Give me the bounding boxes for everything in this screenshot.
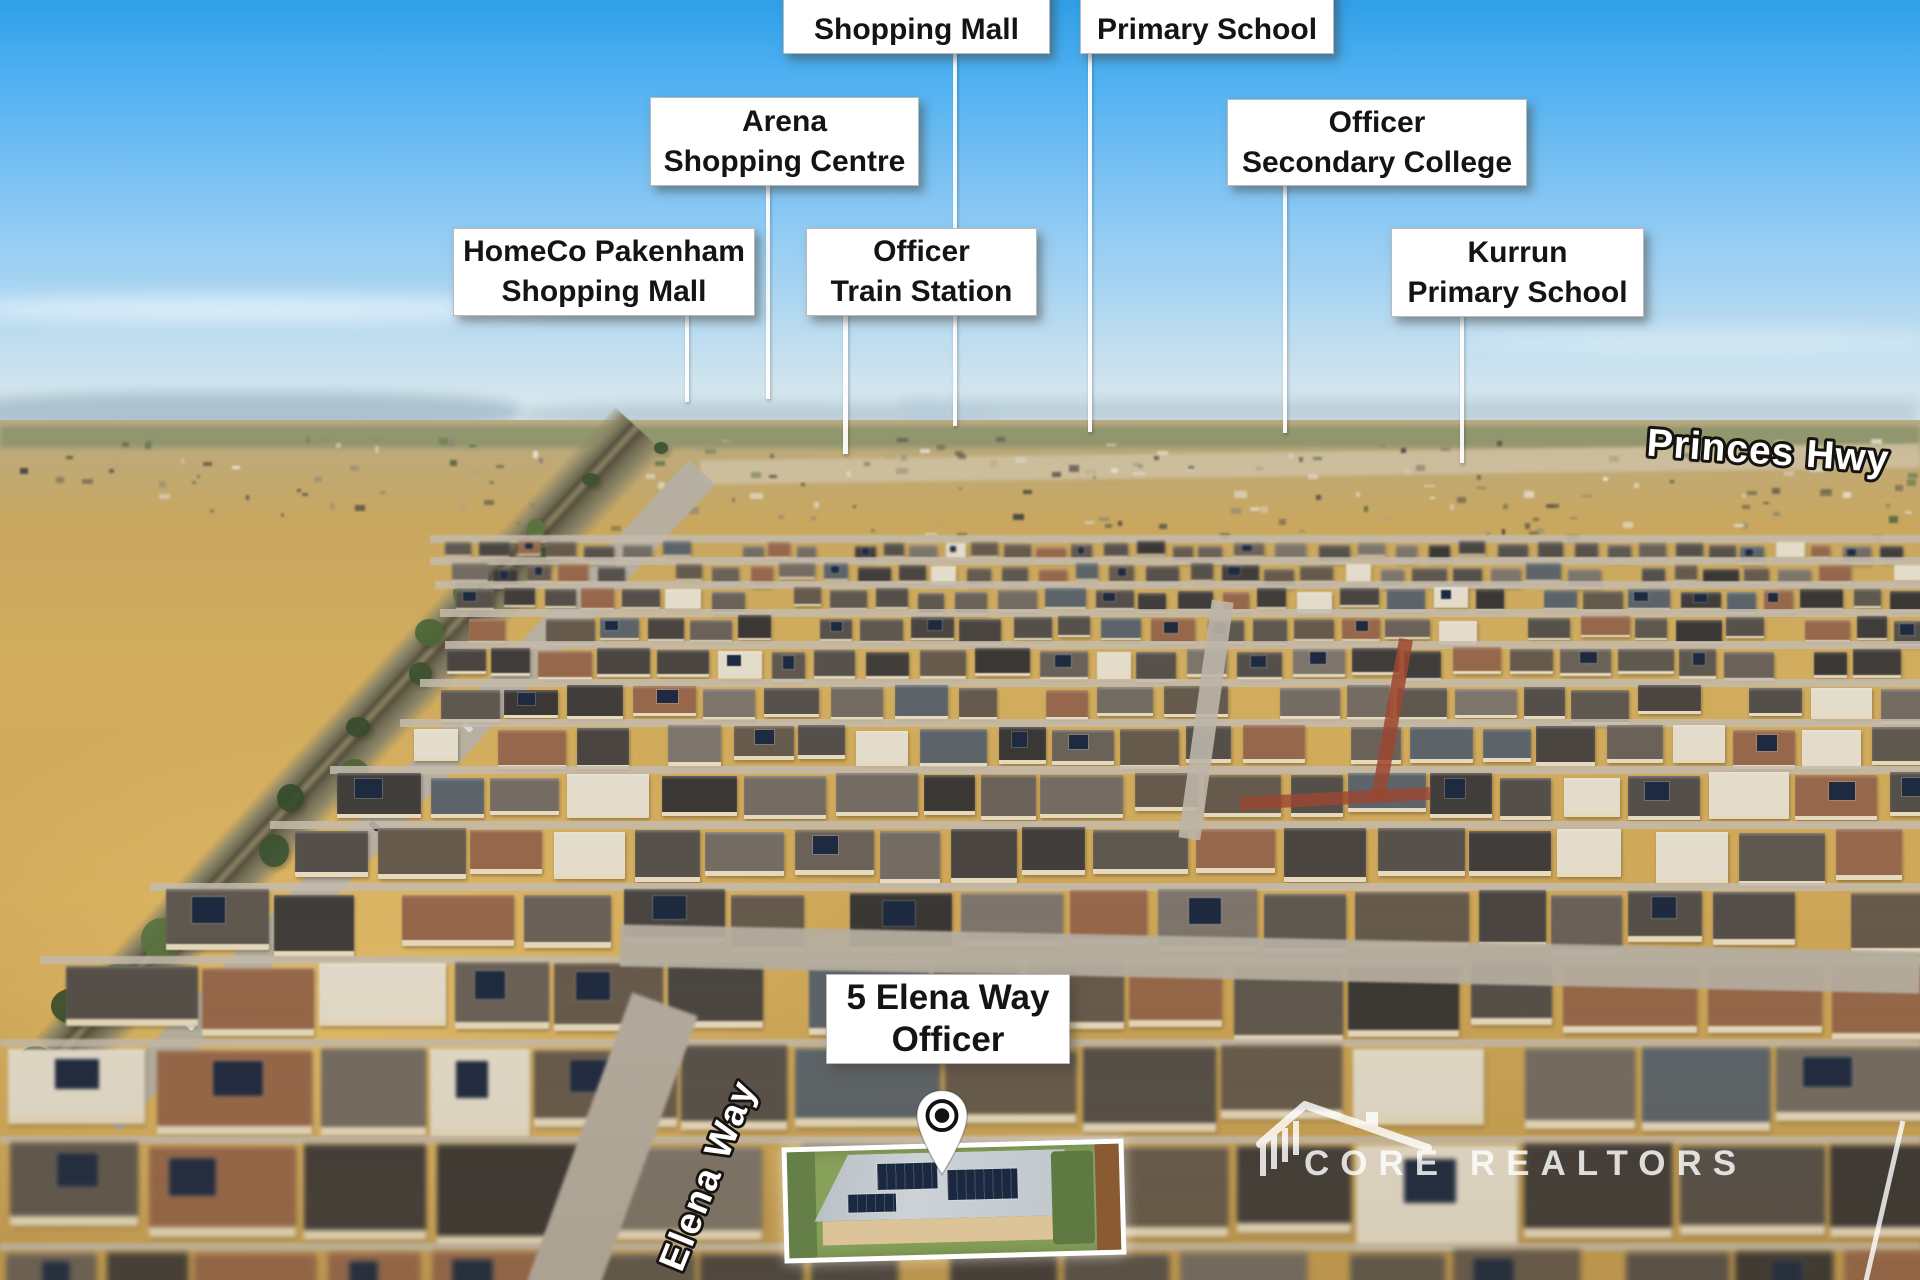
leader-line-homeco — [685, 312, 689, 402]
label-arena-shopping-centre: Arena Shopping Centre — [650, 97, 919, 186]
label-line: Train Station — [831, 272, 1013, 312]
label-line: Bridgewood — [1120, 0, 1293, 7]
label-bridgewood-primary-school: Bridgewood Primary School — [1080, 0, 1334, 54]
label-line: Officer — [892, 1019, 1005, 1061]
label-line: Lakeside Square — [797, 0, 1035, 7]
street-name-overlay: Elena Way — [595, 1058, 825, 1280]
label-lakeside-square-shopping-mall: Lakeside Square Shopping Mall — [783, 0, 1050, 54]
label-property-address: 5 Elena Way Officer — [826, 974, 1070, 1064]
label-kurrun-primary-school: Kurrun Primary School — [1391, 228, 1644, 317]
label-officer-train-station: Officer Train Station — [806, 228, 1037, 316]
label-line: Secondary College — [1242, 143, 1512, 183]
fence — [1095, 1144, 1122, 1251]
lawn — [1051, 1150, 1095, 1244]
leader-line-arena — [766, 183, 770, 399]
label-line: Officer — [873, 232, 970, 272]
label-line: Shopping Mall — [814, 7, 1019, 53]
leader-line-officer-secondary — [1283, 180, 1287, 433]
leader-line-bridgewood — [1088, 46, 1092, 432]
highway-name-overlay: Princes Hwy — [1628, 412, 1908, 502]
label-line: Primary School — [1407, 273, 1627, 313]
watermark-core-realtors: CORE REALTORS — [1246, 1092, 1866, 1196]
label-line: Officer — [1329, 103, 1426, 143]
label-line: Arena — [742, 102, 827, 142]
watermark-text: CORE REALTORS — [1304, 1144, 1747, 1184]
label-line: Shopping Centre — [664, 142, 906, 182]
leader-line-kurrun — [1460, 313, 1464, 463]
label-line: Shopping Mall — [502, 272, 707, 312]
map-pin-icon — [913, 1086, 971, 1180]
label-line: 5 Elena Way — [847, 977, 1050, 1019]
label-line: Kurrun — [1468, 233, 1568, 273]
label-line: HomeCo Pakenham — [463, 232, 745, 272]
label-homeco-pakenham-shopping-mall: HomeCo Pakenham Shopping Mall — [453, 228, 755, 316]
highway-name-princes-hwy: Princes Hwy — [1645, 422, 1890, 482]
label-line: Primary School — [1097, 7, 1317, 53]
street-name-elena-way: Elena Way — [651, 1074, 765, 1276]
leader-line-train-station — [843, 312, 848, 454]
aerial-photo-officer: Lakeside Square Shopping Mall Bridgewood… — [0, 0, 1920, 1280]
solar-panels — [848, 1194, 896, 1213]
label-officer-secondary-college: Officer Secondary College — [1227, 99, 1527, 186]
